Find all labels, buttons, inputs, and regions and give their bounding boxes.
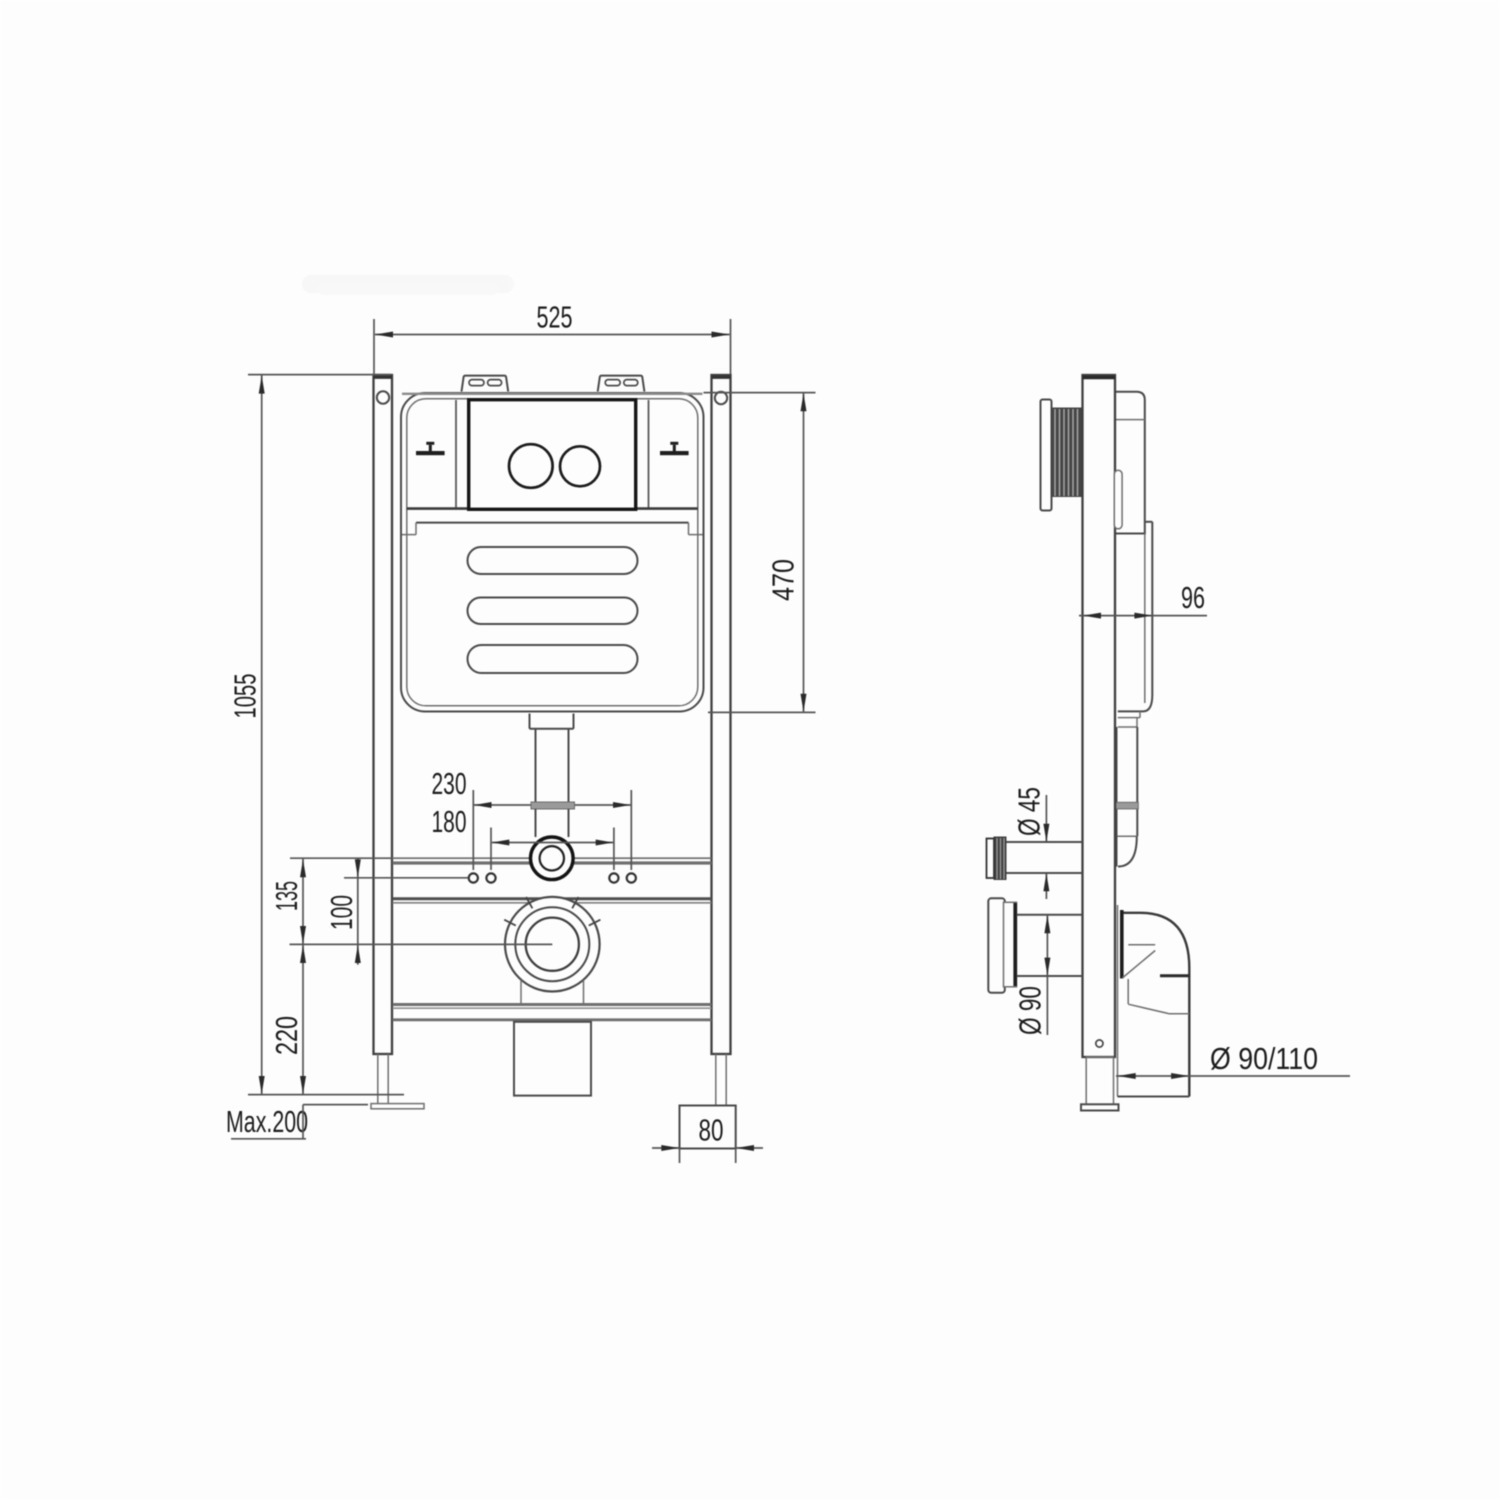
svg-text:80: 80	[699, 1113, 724, 1148]
svg-text:Ø 90/110: Ø 90/110	[1210, 1041, 1318, 1076]
svg-text:Max.200: Max.200	[226, 1104, 308, 1139]
svg-text:135: 135	[269, 881, 304, 911]
svg-text:230: 230	[432, 766, 467, 801]
svg-text:180: 180	[432, 804, 467, 839]
svg-text:220: 220	[269, 1016, 304, 1055]
svg-text:1055: 1055	[228, 674, 263, 719]
svg-text:Ø 90: Ø 90	[1013, 986, 1048, 1035]
svg-text:Ø 45: Ø 45	[1012, 787, 1047, 836]
svg-text:470: 470	[766, 559, 801, 601]
svg-text:525: 525	[537, 300, 573, 335]
svg-text:96: 96	[1181, 580, 1205, 615]
svg-text:100: 100	[324, 895, 359, 930]
